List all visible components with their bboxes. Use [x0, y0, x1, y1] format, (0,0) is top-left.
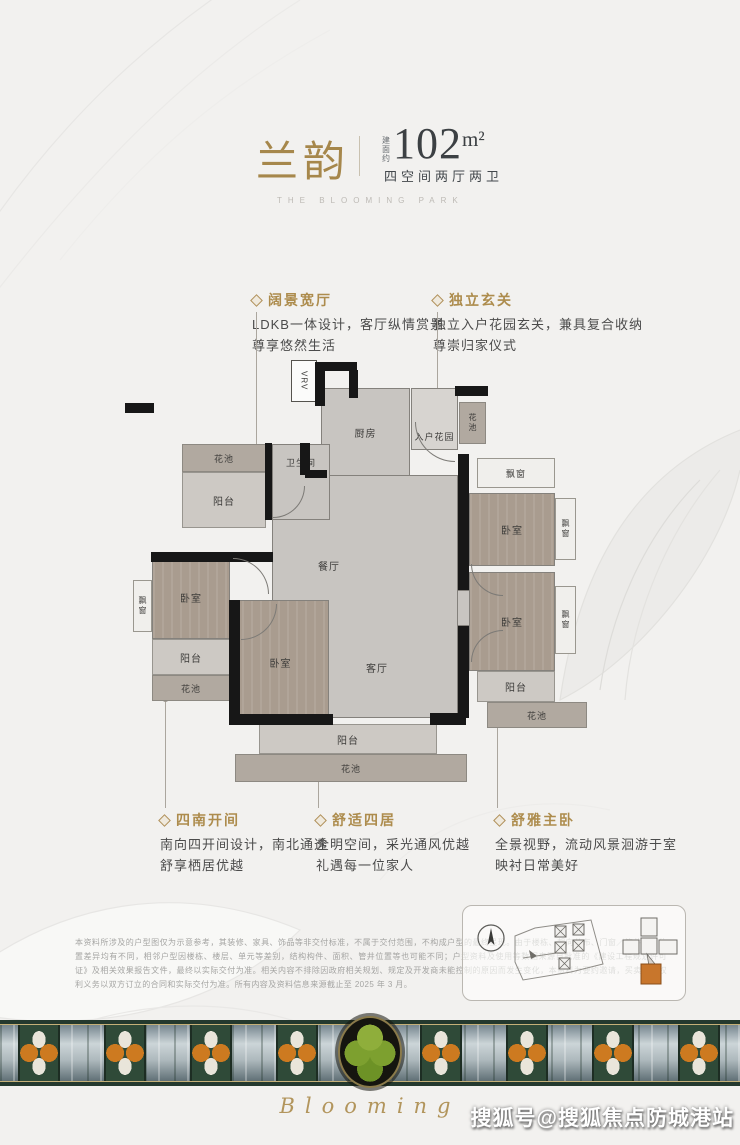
- wall-segment: [265, 443, 272, 520]
- room-label-dining: 餐厅: [318, 558, 340, 573]
- bay-window-right-top: 飘窗: [477, 458, 555, 488]
- diamond-bullet-icon: [158, 814, 171, 827]
- flower-bed-top-left: 花池: [182, 444, 266, 472]
- wall-segment: [430, 713, 466, 725]
- flower-bed-label: 花池: [467, 413, 478, 433]
- balcony-label: 阳台: [337, 732, 359, 747]
- wall-segment: [229, 714, 333, 725]
- wall-segment: [458, 626, 469, 718]
- door-arc: [233, 558, 269, 594]
- header-divider: [359, 136, 360, 176]
- callout-foyer: 独立玄关 独立入户花园玄关，兼具复合收纳 尊崇归家仪式: [433, 290, 633, 352]
- callout-line: 全景视野，流动风景洄游于室: [495, 838, 695, 851]
- room-label-kitchen: 厨房: [355, 425, 377, 440]
- balcony-label: 阳台: [505, 679, 527, 694]
- door-arc: [415, 422, 455, 462]
- flower-bed-top-right: 花池: [459, 402, 486, 444]
- project-subtitle: THE BLOOMING PARK: [277, 196, 464, 205]
- flower-bed-right: 花池: [487, 702, 587, 728]
- room-label-bedroom: 卧室: [501, 614, 523, 629]
- callout-line: 全明空间，采光通风优越: [316, 838, 516, 851]
- bay-window-label: 飘窗: [506, 467, 526, 480]
- room-bedroom-right-top: 卧室: [469, 493, 555, 566]
- site-location-box: [462, 905, 686, 1001]
- callout-title: 阔景宽厅: [268, 290, 332, 310]
- area-prefix: 建面约: [382, 136, 391, 163]
- balcony-right: 阳台: [477, 671, 555, 702]
- room-label-bedroom: 卧室: [501, 522, 523, 537]
- diamond-bullet-icon: [314, 814, 327, 827]
- balcony-bottom: 阳台: [259, 724, 437, 754]
- bay-window-right-lower-side: 飘窗: [555, 586, 576, 654]
- callout-line: 礼遇每一位家人: [316, 859, 516, 872]
- floor-plan: 餐厅 客厅 VRV 厨房 入户花园 花池 卫生间 花池 阳台 卧室 飘窗 阳台 …: [125, 358, 620, 795]
- area-group: 建面约 102 m²: [382, 124, 485, 164]
- room-kitchen: 厨房: [321, 388, 410, 476]
- callout-line: 映衬日常美好: [495, 859, 695, 872]
- wall-segment: [349, 370, 358, 398]
- flower-bed-label: 花池: [214, 452, 234, 465]
- bay-window-label: 飘窗: [560, 519, 571, 539]
- glass-flower-motif: [18, 1025, 60, 1081]
- balcony-left: 阳台: [152, 639, 230, 675]
- bay-window-label: 飘窗: [560, 610, 571, 630]
- highlighted-unit: [641, 964, 661, 984]
- clover-emblem: [338, 1016, 402, 1088]
- glass-flower-motif: [592, 1025, 634, 1081]
- glass-flower-motif: [276, 1025, 318, 1081]
- callout-title: 舒适四居: [332, 810, 396, 830]
- callout-line: LDKB一体设计，客厅纵情赏景: [252, 318, 452, 331]
- site-plan-diagram: [463, 906, 685, 1000]
- callout-line: 尊享悠然生活: [252, 339, 452, 352]
- callout-master-bedroom: 舒雅主卧 全景视野，流动风景洄游于室 映衬日常美好: [495, 810, 695, 872]
- wall-segment: [229, 600, 240, 725]
- diamond-bullet-icon: [493, 814, 506, 827]
- room-bedroom-left: 卧室: [152, 555, 230, 639]
- flower-bed-label: 花池: [181, 682, 201, 695]
- balcony-label: 阳台: [180, 650, 202, 665]
- wall-segment: [151, 552, 273, 562]
- callout-title: 独立玄关: [449, 290, 513, 310]
- callout-title: 舒雅主卧: [511, 810, 575, 830]
- flower-bed-label: 花池: [341, 762, 361, 775]
- glass-flower-motif: [678, 1025, 720, 1081]
- bay-window-label: 飘窗: [137, 596, 148, 616]
- wall-segment: [305, 470, 327, 478]
- watermark: 搜狐号@搜狐焦点防城港站: [471, 1102, 734, 1132]
- flower-bed-bottom: 花池: [235, 754, 467, 782]
- wall-segment: [125, 403, 154, 413]
- plan-title: 兰韵: [256, 128, 350, 189]
- callout-four-rooms: 舒适四居 全明空间，采光通风优越 礼遇每一位家人: [316, 810, 516, 872]
- room-label-bedroom: 卧室: [270, 655, 292, 670]
- balcony-label: 阳台: [213, 493, 235, 508]
- wall-segment: [458, 454, 469, 590]
- flower-bed-left: 花池: [152, 675, 230, 701]
- bay-window-right-upper-side: 飘窗: [555, 498, 576, 560]
- room-label-living: 客厅: [366, 660, 388, 675]
- vrv-label: VRV: [300, 371, 309, 390]
- diamond-bullet-icon: [250, 294, 263, 307]
- area-number: 102: [393, 124, 462, 164]
- callout-line: 独立入户花园玄关，兼具复合收纳: [433, 318, 633, 331]
- wall-segment: [455, 386, 488, 396]
- room-label-bedroom: 卧室: [180, 590, 202, 605]
- flower-bed-label: 花池: [527, 709, 547, 722]
- glass-flower-motif: [506, 1025, 548, 1081]
- callout-line: 尊崇归家仪式: [433, 339, 633, 352]
- compass-icon: [478, 925, 504, 951]
- clover-leaf-icon: [344, 1022, 396, 1082]
- vrv-unit-box: VRV: [291, 360, 317, 402]
- bay-window-left: 飘窗: [133, 580, 152, 632]
- balcony-top-left: 阳台: [182, 472, 266, 528]
- callout-title: 四南开间: [176, 810, 240, 830]
- area-unit: m²: [462, 127, 485, 152]
- diamond-bullet-icon: [431, 294, 444, 307]
- glass-flower-motif: [190, 1025, 232, 1081]
- glass-flower-motif: [104, 1025, 146, 1081]
- callout-wide-hall: 阔景宽厅 LDKB一体设计，客厅纵情赏景 尊享悠然生活: [252, 290, 452, 352]
- glass-flower-motif: [420, 1025, 462, 1081]
- layout-spec: 四空间两厅两卫: [384, 166, 503, 185]
